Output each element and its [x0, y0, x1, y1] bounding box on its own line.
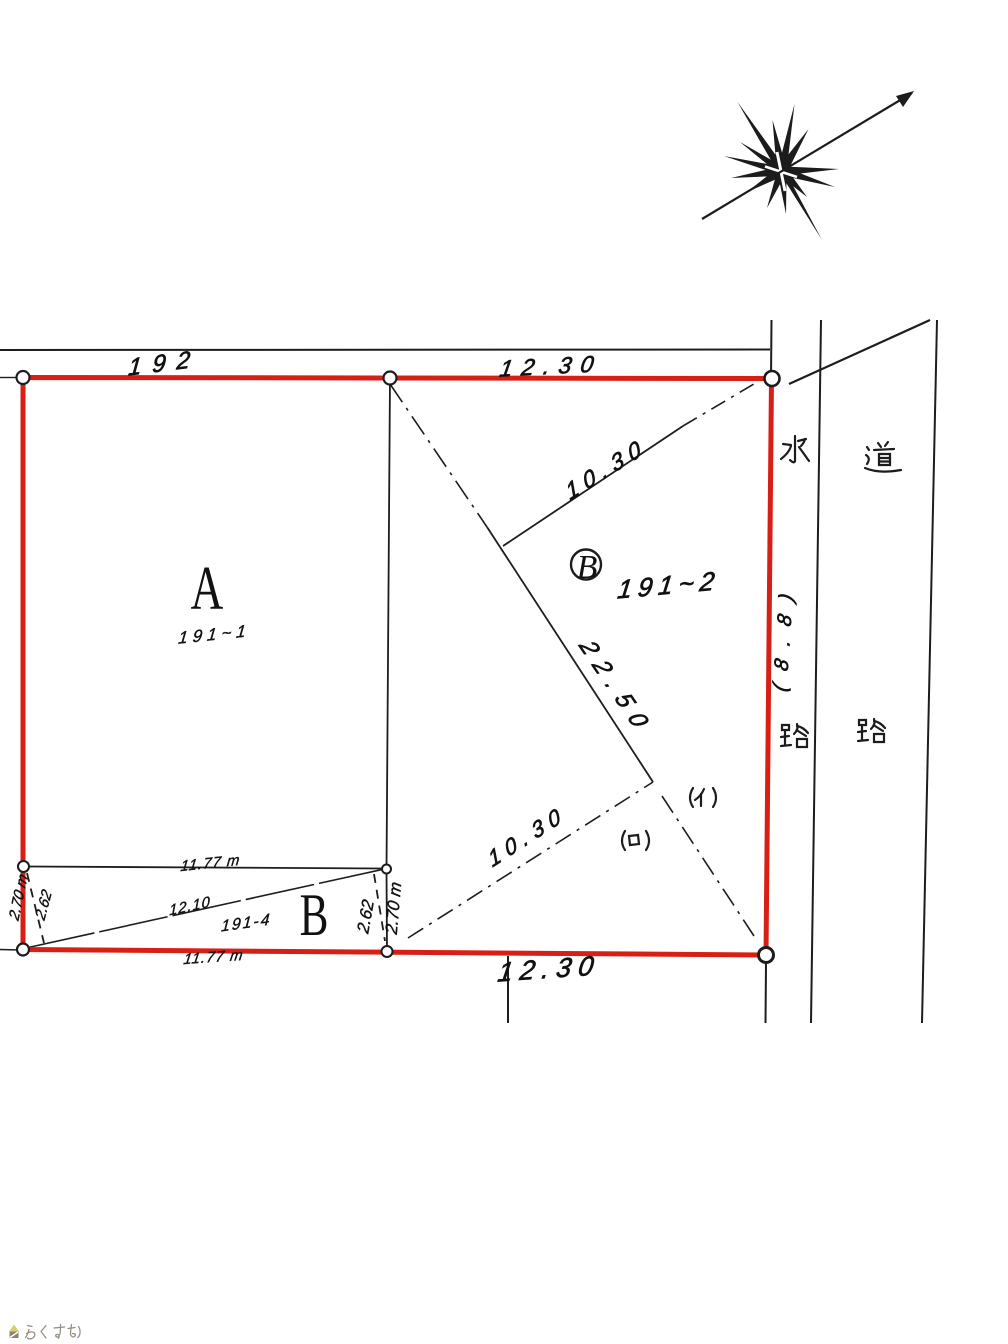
svg-text:12.30: 12.30	[496, 949, 603, 987]
svg-text:191-4: 191-4	[221, 910, 273, 935]
svg-text:191~1: 191~1	[177, 620, 251, 648]
svg-text:11.77 m: 11.77 m	[182, 947, 244, 968]
svg-text:10.30: 10.30	[563, 432, 650, 506]
svg-text:2.70 m: 2.70 m	[382, 880, 405, 936]
svg-text:2.62: 2.62	[353, 897, 377, 936]
svg-text:2.62: 2.62	[32, 886, 55, 923]
svg-text:A: A	[191, 554, 224, 623]
svg-text:B: B	[300, 882, 329, 949]
svg-text:(8.8): (8.8)	[770, 577, 799, 693]
svg-text:191~2: 191~2	[616, 565, 722, 604]
svg-text:11.77 m: 11.77 m	[180, 852, 242, 875]
svg-text:2.70 m: 2.70 m	[6, 871, 31, 924]
svg-text:B: B	[577, 549, 598, 586]
svg-text:12.10: 12.10	[169, 893, 211, 919]
